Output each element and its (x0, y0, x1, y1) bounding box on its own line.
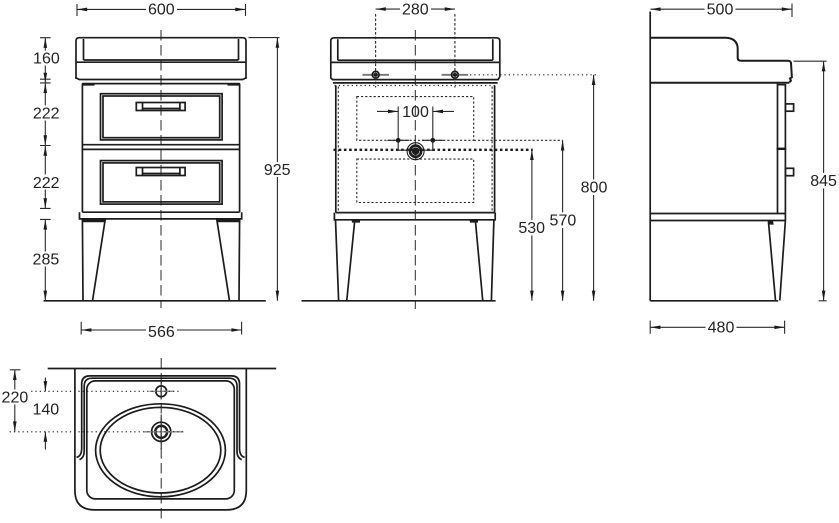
svg-text:566: 566 (148, 324, 175, 341)
svg-text:530: 530 (518, 220, 545, 237)
svg-text:285: 285 (33, 251, 60, 268)
svg-text:100: 100 (402, 104, 429, 121)
svg-text:140: 140 (32, 401, 59, 418)
svg-text:845: 845 (810, 173, 837, 190)
svg-text:480: 480 (708, 320, 735, 337)
svg-text:925: 925 (264, 162, 291, 179)
svg-text:570: 570 (550, 212, 577, 229)
svg-text:222: 222 (33, 175, 60, 192)
svg-text:160: 160 (33, 50, 60, 67)
svg-text:280: 280 (402, 1, 429, 18)
svg-text:800: 800 (581, 180, 608, 197)
svg-text:500: 500 (707, 1, 734, 18)
svg-text:600: 600 (148, 1, 175, 18)
svg-text:222: 222 (33, 105, 60, 122)
svg-text:220: 220 (2, 389, 29, 406)
